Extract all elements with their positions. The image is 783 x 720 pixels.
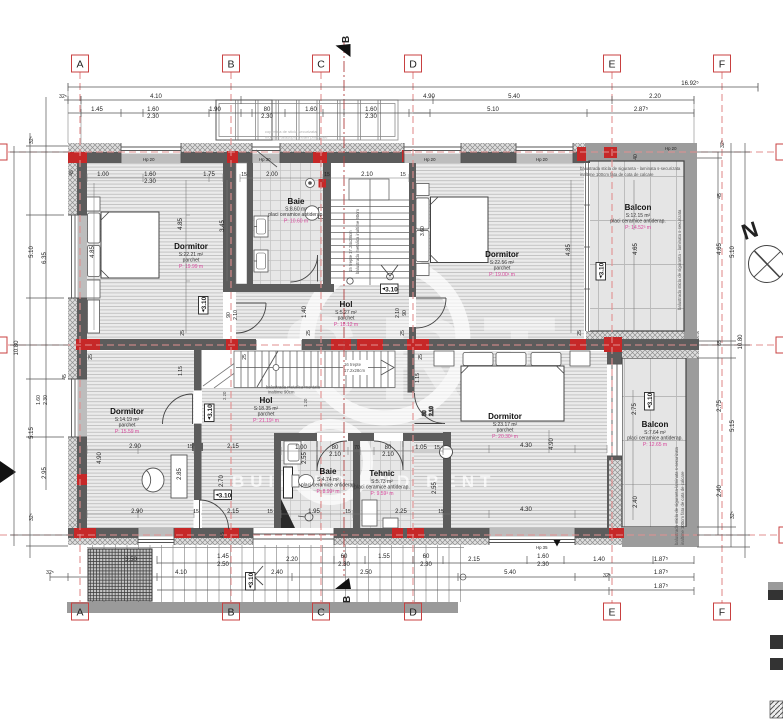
svg-text:45: 45	[717, 193, 723, 199]
svg-text:90: 90	[402, 310, 408, 316]
svg-text:17.2x28cm: 17.2x28cm	[344, 368, 365, 373]
svg-text:Hp 20: Hp 20	[424, 157, 436, 162]
svg-text:2.10: 2.10	[395, 308, 401, 318]
svg-text:15: 15	[438, 509, 444, 515]
svg-text:2.30: 2.30	[261, 114, 273, 120]
svg-text:2.55: 2.55	[432, 482, 438, 494]
svg-text:2.40: 2.40	[271, 570, 283, 576]
svg-text:1.40: 1.40	[302, 306, 308, 318]
svg-text:5.15: 5.15	[730, 420, 736, 432]
svg-text:parchet: parchet	[494, 266, 511, 272]
svg-text:2.20: 2.20	[286, 557, 298, 563]
svg-text:1.20: 1.20	[303, 398, 308, 407]
svg-text:1.60: 1.60	[147, 107, 159, 113]
svg-text:A: A	[76, 607, 83, 619]
svg-text:2.50: 2.50	[360, 570, 372, 576]
svg-text:2.10: 2.10	[429, 406, 435, 416]
svg-text:25: 25	[88, 354, 94, 360]
svg-text:D: D	[409, 607, 417, 619]
svg-text:1.60: 1.60	[144, 172, 156, 178]
svg-text:inaltime 100cm fata de cota de: inaltime 100cm fata de cota de calcare	[680, 471, 685, 545]
svg-text:32⁵: 32⁵	[29, 136, 35, 144]
svg-text:5.40: 5.40	[504, 570, 516, 576]
svg-text:15: 15	[267, 509, 273, 515]
svg-text:80: 80	[332, 445, 339, 451]
svg-text:parchet: parchet	[338, 316, 355, 322]
svg-text:balustrada sticla de siguranta: balustrada sticla de siguranta-laminata …	[674, 446, 679, 545]
svg-text:1.15: 1.15	[415, 373, 421, 383]
svg-text:D: D	[409, 59, 417, 71]
svg-text:parchet: parchet	[497, 428, 514, 434]
svg-text:1.90: 1.90	[209, 107, 221, 113]
svg-text:placi ceramice antiderap.: placi ceramice antiderap.	[610, 219, 666, 225]
svg-text:16.92⁵: 16.92⁵	[681, 80, 699, 87]
svg-text:45: 45	[62, 374, 68, 380]
svg-text:6.35: 6.35	[42, 252, 48, 264]
svg-text:2.10: 2.10	[361, 172, 373, 178]
svg-text:2.15: 2.15	[227, 444, 239, 450]
svg-text:1.45: 1.45	[217, 554, 229, 560]
svg-text:Hp 20: Hp 20	[143, 157, 155, 162]
svg-text:B: B	[342, 596, 353, 603]
svg-text:2.30: 2.30	[147, 114, 159, 120]
svg-text:2.90: 2.90	[131, 509, 143, 515]
svg-text:parchet: parchet	[258, 412, 275, 418]
svg-text:2.30: 2.30	[537, 562, 549, 568]
svg-text:Dormitor: Dormitor	[485, 250, 519, 259]
svg-text:P: 10.60 m: P: 10.60 m	[284, 219, 308, 225]
svg-text:2.10: 2.10	[329, 452, 341, 458]
svg-text:copertina de sticla securiz: copertina de sticla securizata	[265, 129, 317, 134]
svg-text:32⁵: 32⁵	[730, 511, 736, 519]
svg-text:60: 60	[423, 554, 430, 560]
svg-text:5.15: 5.15	[29, 427, 35, 439]
svg-text:2.30: 2.30	[144, 179, 156, 185]
svg-text:2.87⁵: 2.87⁵	[634, 106, 649, 113]
svg-text:15: 15	[434, 445, 440, 451]
svg-text:balustrada sticla de siguranta: balustrada sticla de siguranta - laminat…	[580, 166, 681, 171]
svg-text:4.10: 4.10	[175, 570, 187, 576]
svg-text:2.75: 2.75	[717, 400, 723, 412]
svg-text:Hp 30: Hp 30	[259, 157, 271, 162]
svg-text:4.65: 4.65	[633, 243, 639, 255]
svg-text:P: 15.59 m: P: 15.59 m	[115, 429, 139, 435]
svg-text:P: 18.12 m: P: 18.12 m	[334, 322, 358, 328]
svg-text:25: 25	[306, 330, 312, 336]
svg-text:3.45: 3.45	[220, 220, 226, 232]
svg-text:Hp 35: Hp 35	[536, 545, 548, 550]
svg-text:1.15: 1.15	[178, 366, 184, 376]
svg-text:A: A	[76, 59, 83, 71]
svg-text:4.65: 4.65	[717, 243, 723, 255]
svg-text:15: 15	[400, 172, 406, 178]
svg-text:balustrada sticla de siguranta: balustrada sticla de siguranta - laminat…	[677, 209, 682, 310]
svg-text:15 trepte 17.24x28cm: 15 trepte 17.24x28cm	[348, 230, 353, 272]
svg-text:1.95: 1.95	[308, 509, 320, 515]
svg-text:P: 12.65 m: P: 12.65 m	[643, 442, 667, 448]
svg-text:1.60: 1.60	[36, 395, 42, 405]
svg-text:5.40: 5.40	[508, 94, 520, 100]
svg-text:4.85: 4.85	[566, 244, 572, 256]
svg-text:1.40: 1.40	[593, 557, 605, 563]
svg-text:2.85: 2.85	[177, 468, 183, 480]
svg-text:32⁵: 32⁵	[29, 513, 35, 521]
svg-text:32⁵: 32⁵	[720, 140, 726, 148]
svg-text:F: F	[719, 59, 725, 71]
svg-text:10.80: 10.80	[738, 334, 744, 350]
svg-text:2.15: 2.15	[468, 557, 480, 563]
svg-text:1.75: 1.75	[203, 172, 215, 178]
svg-text:2.70: 2.70	[219, 475, 225, 487]
svg-text:1.00: 1.00	[295, 445, 307, 451]
svg-text:Baie: Baie	[320, 467, 337, 476]
svg-text:4.90: 4.90	[97, 452, 103, 464]
svg-text:80: 80	[422, 410, 428, 416]
svg-text:15: 15	[345, 509, 351, 515]
svg-text:P: 19.99 m: P: 19.99 m	[179, 264, 203, 270]
svg-text:2.30: 2.30	[365, 114, 377, 120]
svg-text:Balcon: Balcon	[642, 420, 669, 429]
svg-text:16 trepte: 16 trepte	[344, 362, 362, 367]
svg-text:parchet: parchet	[119, 423, 136, 429]
svg-text:inaltime 100cm fata de cota de: inaltime 100cm fata de cota de calcare	[580, 172, 654, 177]
svg-text:32⁵: 32⁵	[603, 573, 611, 579]
svg-text:montata deasupra intrarii p: montata deasupra intrarii principale	[265, 135, 328, 140]
svg-text:2.20: 2.20	[222, 391, 227, 400]
svg-text:Dormitor: Dormitor	[174, 242, 208, 251]
svg-text:2.55: 2.55	[302, 452, 308, 464]
svg-text:2.10: 2.10	[382, 452, 394, 458]
svg-text:60: 60	[341, 554, 348, 560]
svg-text:25: 25	[418, 354, 424, 360]
svg-text:1.60: 1.60	[305, 107, 317, 113]
svg-text:2.15: 2.15	[227, 509, 239, 515]
svg-text:balustrada metalica inaltime 9: balustrada metalica inaltime 90cm	[355, 209, 360, 274]
svg-text:C: C	[317, 607, 325, 619]
svg-text:15: 15	[241, 172, 247, 178]
svg-text:P: 20.30³ m: P: 20.30³ m	[492, 434, 518, 440]
svg-text:1.60: 1.60	[365, 107, 377, 113]
svg-text:P: 9.59³ m: P: 9.59³ m	[370, 491, 393, 497]
svg-text:2.30: 2.30	[420, 562, 432, 568]
svg-text:4.30: 4.30	[520, 507, 532, 513]
svg-text:placi ceramice antiderap.: placi ceramice antiderap.	[627, 436, 683, 442]
svg-text:2.90: 2.90	[129, 444, 141, 450]
svg-text:2.40: 2.40	[633, 496, 639, 508]
svg-text:placi ceramice antiderap.: placi ceramice antiderap.	[268, 212, 324, 218]
svg-text:10.80: 10.80	[14, 340, 20, 356]
svg-text:Baie: Baie	[288, 197, 305, 206]
svg-text:32⁵: 32⁵	[46, 570, 54, 576]
svg-text:1.87⁵: 1.87⁵	[654, 583, 669, 590]
svg-text:2.30: 2.30	[338, 562, 350, 568]
svg-text:Hol: Hol	[340, 300, 353, 309]
svg-text:Hp 20: Hp 20	[665, 146, 677, 151]
svg-text:4.10: 4.10	[150, 94, 162, 100]
svg-text:F: F	[719, 607, 725, 619]
svg-text:1.00: 1.00	[97, 172, 109, 178]
svg-text:15: 15	[324, 172, 330, 178]
svg-text:25: 25	[577, 330, 583, 336]
svg-text:32⁵: 32⁵	[59, 94, 67, 100]
svg-text:1.05: 1.05	[415, 445, 427, 451]
svg-text:5.10: 5.10	[487, 107, 499, 113]
svg-text:45: 45	[69, 170, 75, 176]
svg-text:90: 90	[226, 312, 232, 318]
svg-text:15: 15	[187, 444, 193, 450]
svg-text:25: 25	[400, 330, 406, 336]
svg-text:1.87⁵: 1.87⁵	[654, 569, 669, 576]
svg-text:40: 40	[633, 154, 639, 160]
svg-text:70: 70	[354, 445, 360, 451]
svg-text:2.50: 2.50	[217, 562, 229, 568]
svg-text:65: 65	[717, 340, 723, 346]
svg-text:3.60: 3.60	[420, 226, 426, 236]
svg-text:2.10: 2.10	[233, 310, 239, 320]
svg-text:E: E	[608, 607, 615, 619]
svg-text:P: 14.52³ m: P: 14.52³ m	[625, 225, 651, 231]
svg-text:4.90: 4.90	[549, 438, 555, 450]
svg-text:2.20: 2.20	[649, 94, 661, 100]
svg-text:inaltime 90cm: inaltime 90cm	[268, 390, 295, 395]
svg-text:1.55: 1.55	[378, 554, 390, 560]
svg-text:C: C	[317, 59, 325, 71]
svg-text:4.30: 4.30	[520, 443, 532, 449]
svg-text:80: 80	[264, 107, 271, 113]
svg-text:80: 80	[385, 445, 392, 451]
svg-text:3.50: 3.50	[125, 557, 137, 563]
svg-text:1.60: 1.60	[537, 554, 549, 560]
svg-text:1.45: 1.45	[91, 107, 103, 113]
svg-text:placi ceramice antiderap.: placi ceramice antiderap.	[354, 485, 410, 491]
svg-text:25: 25	[242, 354, 248, 360]
svg-text:P: 21.19³ m: P: 21.19³ m	[253, 418, 279, 424]
svg-text:2.00: 2.00	[266, 172, 278, 178]
svg-text:parchet: parchet	[183, 258, 200, 264]
svg-text:2.30: 2.30	[43, 395, 49, 405]
svg-text:P: 19.00¹ m: P: 19.00¹ m	[489, 272, 515, 278]
svg-text:4.90: 4.90	[423, 94, 435, 100]
svg-text:B: B	[227, 607, 234, 619]
svg-text:5.10: 5.10	[29, 246, 35, 258]
svg-text:45: 45	[220, 532, 226, 538]
svg-text:5.10: 5.10	[730, 246, 736, 258]
svg-text:Dormitor: Dormitor	[488, 412, 522, 421]
svg-text:1.87⁵: 1.87⁵	[654, 556, 669, 563]
svg-text:P: 8.99³ m: P: 8.99³ m	[316, 489, 339, 495]
svg-text:B: B	[341, 36, 352, 43]
svg-text:B: B	[227, 59, 234, 71]
svg-text:2.95: 2.95	[42, 467, 48, 479]
svg-text:2.40: 2.40	[717, 485, 723, 497]
svg-text:Tehnic: Tehnic	[369, 469, 395, 478]
svg-text:placi ceramice antiderap: placi ceramice antiderap	[301, 483, 355, 489]
svg-text:2.75: 2.75	[632, 403, 638, 415]
svg-text:15: 15	[193, 509, 199, 515]
svg-text:25: 25	[180, 330, 186, 336]
svg-text:Dormitor: Dormitor	[110, 407, 144, 416]
svg-text:Balcon: Balcon	[625, 203, 652, 212]
svg-text:4.85: 4.85	[178, 218, 184, 230]
svg-text:2.25: 2.25	[395, 509, 407, 515]
svg-text:Hol: Hol	[260, 396, 273, 405]
svg-text:Hp 20: Hp 20	[536, 157, 548, 162]
svg-text:4.85: 4.85	[90, 246, 96, 258]
svg-text:E: E	[608, 59, 615, 71]
